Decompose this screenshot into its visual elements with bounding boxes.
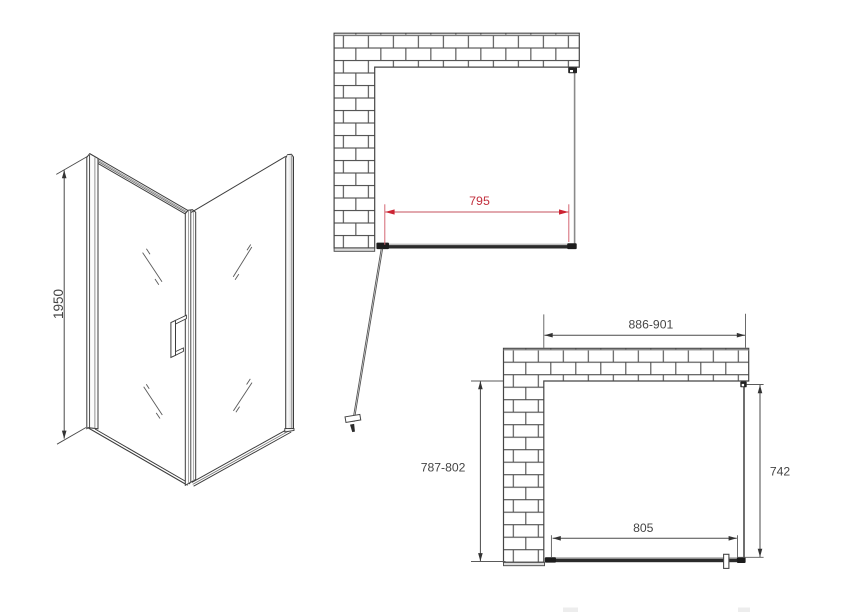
svg-text:886-901: 886-901: [629, 318, 674, 332]
svg-text:787-802: 787-802: [421, 461, 466, 475]
svg-text:742: 742: [770, 465, 791, 479]
svg-text:795: 795: [469, 194, 490, 208]
svg-text:805: 805: [633, 521, 654, 535]
svg-text:1950: 1950: [51, 289, 66, 319]
